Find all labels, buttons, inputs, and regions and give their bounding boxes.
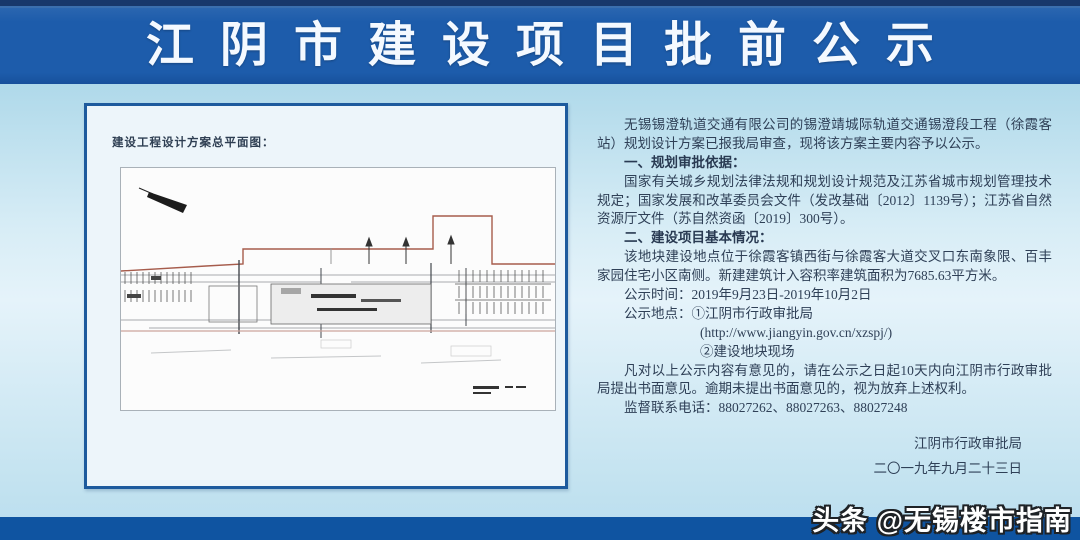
forecourt-outline: [209, 286, 257, 322]
station-building: [271, 284, 431, 324]
publicity-url: (http://www.jiangyin.gov.cn/xzspj/): [597, 324, 1052, 343]
site-plan-panel: 建设工程设计方案总平面图：: [84, 103, 568, 489]
publicity-time: 公示时间：2019年9月23日-2019年10月2日: [597, 286, 1052, 305]
signature-block: 江阴市行政审批局 二〇一九年九月二十三日: [597, 432, 1052, 481]
site-plan-svg: [121, 168, 555, 410]
publicity-place-1: 公示地点：①江阴市行政审批局: [597, 305, 1052, 324]
publicity-place-2: ②建设地块现场: [597, 343, 1052, 362]
objection-clause: 凡对以上公示内容有意见的，请在公示之日起10天内向江阴市行政审批局提出书面意见。…: [597, 362, 1052, 400]
page-title: 江阴市建设项目批前公示: [0, 8, 1080, 84]
north-arrow-icon: [139, 188, 187, 213]
supervision-phone: 监督联系电话：88027262、88027263、88027248: [597, 399, 1052, 418]
notice-board: 江阴市建设项目批前公示 建设工程设计方案总平面图：: [0, 0, 1080, 540]
watermark-text: 头条 @无锡楼市指南: [812, 499, 1072, 538]
parking-grid-left: [125, 272, 191, 302]
issuer-name: 江阴市行政审批局: [597, 432, 1022, 456]
section1-body: 国家有关城乡规划法律法规和规划设计规范及江苏省城市规划管理技术规定；国家发展和改…: [597, 173, 1052, 230]
issue-date: 二〇一九年九月二十三日: [597, 457, 1022, 481]
site-plan-label: 建设工程设计方案总平面图：: [112, 134, 275, 150]
scale-mark: [473, 386, 526, 394]
dimension-arrows: [331, 236, 454, 264]
section2-heading: 二、建设项目基本情况：: [597, 229, 1052, 248]
notice-text: 无锡锡澄轨道交通有限公司的锡澄靖城际轨道交通锡澄段工程（徐霞客站）规划设计方案已…: [597, 116, 1052, 481]
plot-boundary-line: [121, 216, 555, 271]
section1-heading: 一、规划审批依据：: [597, 154, 1052, 173]
parking-grid-right: [455, 270, 551, 314]
road-lines: [121, 331, 555, 363]
site-plan-drawing: [120, 167, 556, 411]
section2-body: 该地块建设地点位于徐霞客镇西街与徐霞客大道交叉口东南象限、百丰家园住宅小区南侧。…: [597, 248, 1052, 286]
title-bar: 江阴市建设项目批前公示: [0, 6, 1080, 84]
notice-intro: 无锡锡澄轨道交通有限公司的锡澄靖城际轨道交通锡澄段工程（徐霞客站）规划设计方案已…: [597, 116, 1052, 154]
